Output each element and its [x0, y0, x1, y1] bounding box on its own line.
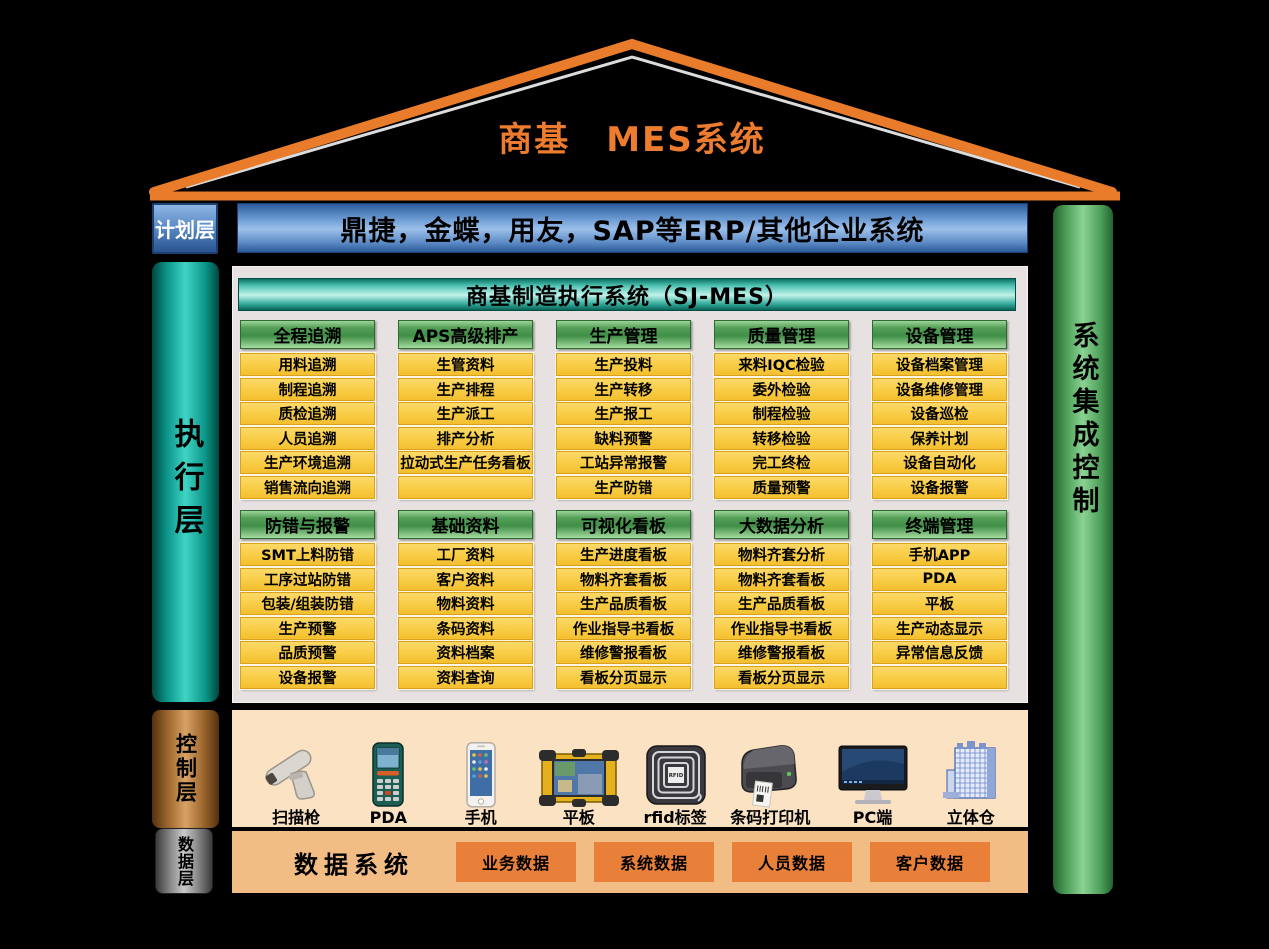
- control-layer-text: 控制层: [171, 733, 201, 805]
- module-group: 防错与报警SMT上料防错工序过站防错包装/组装防错生产预警品质预警设备报警: [240, 510, 375, 690]
- data-box-row: 业务数据系统数据人员数据客户数据: [456, 842, 990, 882]
- module-item: 来料IQC检验: [714, 353, 849, 376]
- data-panel: 数据系统 业务数据系统数据人员数据客户数据: [232, 831, 1028, 893]
- module-item: 工厂资料: [398, 543, 533, 566]
- module-item: 生产预警: [240, 617, 375, 640]
- data-system-title: 数据系统: [294, 831, 414, 893]
- module-item: [398, 476, 533, 499]
- module-item: 工序过站防错: [240, 568, 375, 591]
- module-item: 质量预警: [714, 476, 849, 499]
- module-item: 生产品质看板: [556, 592, 691, 615]
- data-layer-text: 数据层: [176, 836, 192, 887]
- module-item: 排产分析: [398, 427, 533, 450]
- module-item: 转移检验: [714, 427, 849, 450]
- svg-text:RFID: RFID: [669, 773, 684, 779]
- module-item: SMT上料防错: [240, 543, 375, 566]
- module-item: 物料资料: [398, 592, 533, 615]
- pda-icon: [353, 742, 423, 808]
- module-item: 设备维修管理: [872, 378, 1007, 401]
- system-integration-bar: 系统集成控制: [1053, 205, 1113, 894]
- barcode-printer-icon: [730, 742, 810, 808]
- module-group-header: APS高级排产: [398, 320, 533, 349]
- device-label: 扫描枪: [272, 809, 320, 827]
- module-item: 生产报工: [556, 402, 691, 425]
- module-group: 全程追溯用料追溯制程追溯质检追溯人员追溯生产环境追溯销售流向追溯: [240, 320, 375, 500]
- module-item: 客户资料: [398, 568, 533, 591]
- module-group-row-1: 全程追溯用料追溯制程追溯质检追溯人员追溯生产环境追溯销售流向追溯APS高级排产生…: [240, 320, 1007, 500]
- device: RFIDrfid标签: [642, 723, 708, 827]
- execution-layer-text: 执行层: [164, 418, 208, 547]
- rfid-tag-icon: RFID: [642, 744, 708, 808]
- module-item: 手机APP: [872, 543, 1007, 566]
- module-item: 生产防错: [556, 476, 691, 499]
- module-item: 生产进度看板: [556, 543, 691, 566]
- device-label: 平板: [563, 809, 595, 827]
- mes-architecture-diagram: 商基 MES系统 计划层 鼎捷，金蝶，用友，SAP等ERP/其他企业系统 执行层…: [0, 0, 1269, 949]
- data-box: 业务数据: [456, 842, 576, 882]
- device-label: PDA: [370, 809, 407, 827]
- module-item: 制程追溯: [240, 378, 375, 401]
- module-item: 设备报警: [872, 476, 1007, 499]
- module-group-header: 基础资料: [398, 510, 533, 539]
- module-group-header: 设备管理: [872, 320, 1007, 349]
- module-item: 销售流向追溯: [240, 476, 375, 499]
- system-integration-text: 系统集成控制: [1064, 321, 1103, 519]
- erp-systems-bar: 鼎捷，金蝶，用友，SAP等ERP/其他企业系统: [237, 203, 1028, 253]
- module-item: 保养计划: [872, 427, 1007, 450]
- execution-layer-label: 执行层: [152, 262, 219, 702]
- control-layer-label: 控制层: [152, 710, 219, 828]
- module-item: 平板: [872, 592, 1007, 615]
- module-item: [872, 666, 1007, 689]
- module-group-row-2: 防错与报警SMT上料防错工序过站防错包装/组装防错生产预警品质预警设备报警基础资…: [240, 510, 1007, 690]
- module-item: 生产排程: [398, 378, 533, 401]
- module-group: 质量管理来料IQC检验委外检验制程检验转移检验完工终检质量预警: [714, 320, 849, 500]
- device: 平板: [538, 723, 620, 827]
- module-group-header: 全程追溯: [240, 320, 375, 349]
- smartphone-icon: [446, 742, 516, 808]
- mes-panel-header: 商基制造执行系统（SJ-MES）: [238, 278, 1016, 311]
- module-item: 工站异常报警: [556, 451, 691, 474]
- module-item: 条码资料: [398, 617, 533, 640]
- module-group-header: 可视化看板: [556, 510, 691, 539]
- data-box: 系统数据: [594, 842, 714, 882]
- device: PC端: [833, 723, 913, 827]
- module-group-header: 生产管理: [556, 320, 691, 349]
- module-item: 维修警报看板: [556, 641, 691, 664]
- module-item: 缺料预警: [556, 427, 691, 450]
- module-group: 大数据分析物料齐套分析物料齐套看板生产品质看板作业指导书看板维修警报看板看板分页…: [714, 510, 849, 690]
- module-item: 生产品质看板: [714, 592, 849, 615]
- module-item: 质检追溯: [240, 402, 375, 425]
- warehouse-icon: [935, 740, 1007, 808]
- module-group: 生产管理生产投料生产转移生产报工缺料预警工站异常报警生产防错: [556, 320, 691, 500]
- module-group: 可视化看板生产进度看板物料齐套看板生产品质看板作业指导书看板维修警报看板看板分页…: [556, 510, 691, 690]
- device-label: rfid标签: [643, 809, 706, 827]
- module-item: 生管资料: [398, 353, 533, 376]
- diagram-title: 商基 MES系统: [332, 112, 932, 161]
- module-item: 生产派工: [398, 402, 533, 425]
- mes-panel: 商基制造执行系统（SJ-MES） 全程追溯用料追溯制程追溯质检追溯人员追溯生产环…: [232, 266, 1028, 703]
- device: 立体仓: [935, 723, 1007, 827]
- module-item: 生产动态显示: [872, 617, 1007, 640]
- module-group-header: 质量管理: [714, 320, 849, 349]
- device-label: 条码打印机: [730, 809, 810, 827]
- module-item: 作业指导书看板: [714, 617, 849, 640]
- data-box: 客户数据: [870, 842, 990, 882]
- module-item: 物料齐套看板: [556, 568, 691, 591]
- device-row: 扫描枪PDA手机平板RFIDrfid标签条码打印机PC端立体仓: [250, 710, 1018, 827]
- module-item: 设备巡检: [872, 402, 1007, 425]
- module-item: 看板分页显示: [714, 666, 849, 689]
- module-group-header: 终端管理: [872, 510, 1007, 539]
- module-item: 用料追溯: [240, 353, 375, 376]
- module-item: 维修警报看板: [714, 641, 849, 664]
- device-label: PC端: [853, 809, 892, 827]
- module-item: 生产环境追溯: [240, 451, 375, 474]
- module-group: 终端管理手机APPPDA平板生产动态显示异常信息反馈: [872, 510, 1007, 690]
- module-group-header: 防错与报警: [240, 510, 375, 539]
- module-item: 设备自动化: [872, 451, 1007, 474]
- data-box: 人员数据: [732, 842, 852, 882]
- scanner-gun-icon: [261, 746, 331, 808]
- module-item: 生产转移: [556, 378, 691, 401]
- control-panel: 扫描枪PDA手机平板RFIDrfid标签条码打印机PC端立体仓: [232, 710, 1028, 827]
- device-label: 手机: [465, 809, 497, 827]
- device: 条码打印机: [730, 723, 810, 827]
- module-item: 作业指导书看板: [556, 617, 691, 640]
- device-label: 立体仓: [947, 809, 995, 827]
- module-item: 完工终检: [714, 451, 849, 474]
- module-item: 资料查询: [398, 666, 533, 689]
- data-layer-label: 数据层: [155, 828, 213, 894]
- module-item: 人员追溯: [240, 427, 375, 450]
- device: PDA: [353, 723, 423, 827]
- device: 扫描枪: [261, 723, 331, 827]
- module-group: 设备管理设备档案管理设备维修管理设备巡检保养计划设备自动化设备报警: [872, 320, 1007, 500]
- module-item: 生产投料: [556, 353, 691, 376]
- module-item: 看板分页显示: [556, 666, 691, 689]
- module-item: 制程检验: [714, 402, 849, 425]
- pc-monitor-icon: [833, 744, 913, 808]
- module-item: 品质预警: [240, 641, 375, 664]
- module-item: 物料齐套分析: [714, 543, 849, 566]
- rugged-tablet-icon: [538, 746, 620, 808]
- module-group: APS高级排产生管资料生产排程生产派工排产分析拉动式生产任务看板: [398, 320, 533, 500]
- module-item: 异常信息反馈: [872, 641, 1007, 664]
- device: 手机: [446, 723, 516, 827]
- module-item: 设备报警: [240, 666, 375, 689]
- planning-layer-label: 计划层: [152, 203, 218, 254]
- module-item: 委外检验: [714, 378, 849, 401]
- module-item: 包装/组装防错: [240, 592, 375, 615]
- module-item: 物料齐套看板: [714, 568, 849, 591]
- module-item: 设备档案管理: [872, 353, 1007, 376]
- module-item: PDA: [872, 568, 1007, 591]
- module-group-header: 大数据分析: [714, 510, 849, 539]
- module-group: 基础资料工厂资料客户资料物料资料条码资料资料档案资料查询: [398, 510, 533, 690]
- module-item: 资料档案: [398, 641, 533, 664]
- module-item: 拉动式生产任务看板: [398, 451, 533, 474]
